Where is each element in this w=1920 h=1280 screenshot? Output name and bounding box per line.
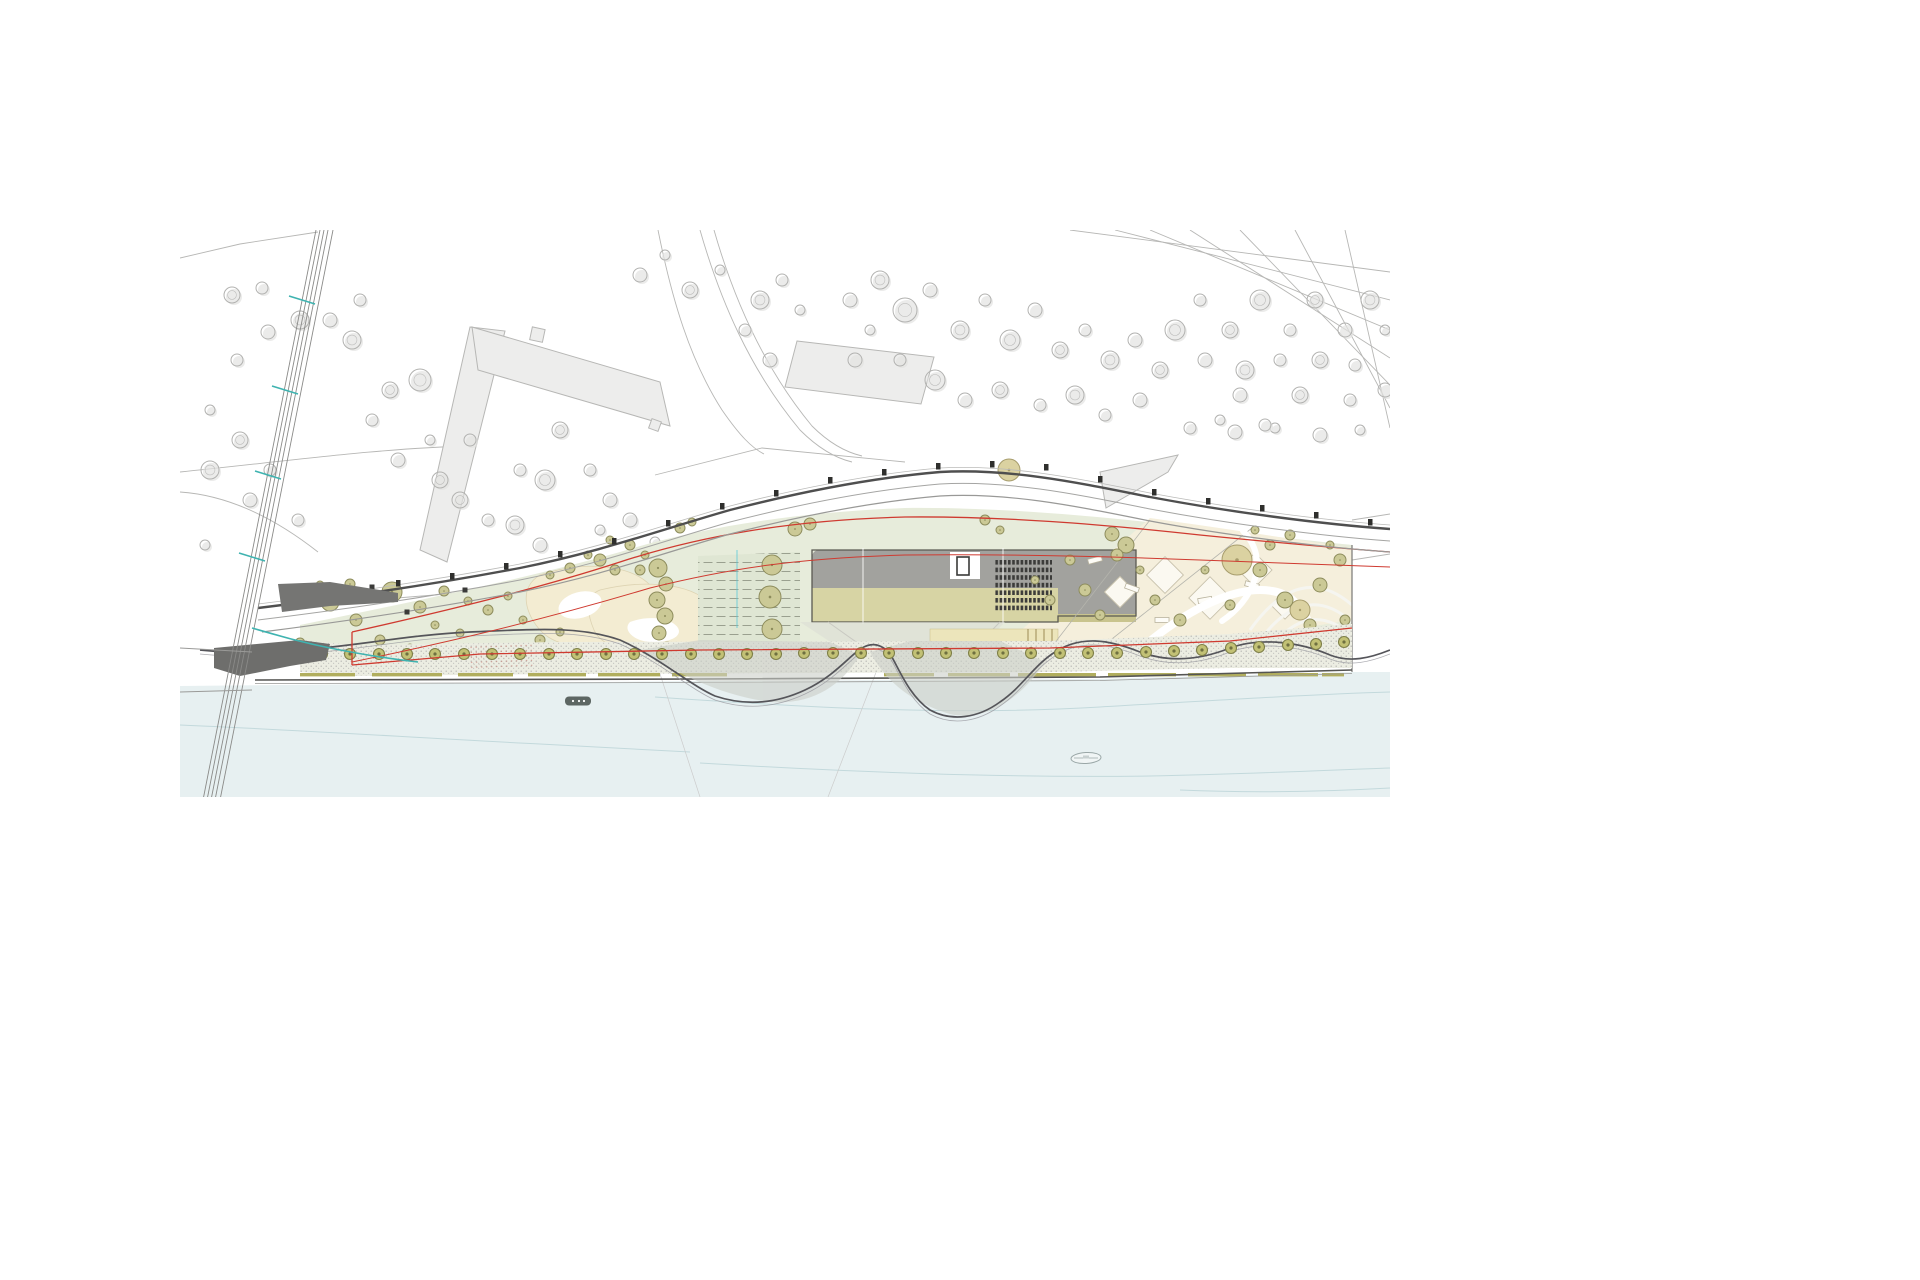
parking-lot [698,552,800,652]
boat [565,697,591,706]
context-building-large-wing [472,327,670,426]
site-plan-canvas [0,0,1920,1280]
context-building-parallelogram [785,341,934,404]
bridge-abutment [278,582,398,612]
roof-skylight [957,557,969,575]
site-plan-drawing [0,0,1920,1280]
context-shed-small [530,327,545,342]
